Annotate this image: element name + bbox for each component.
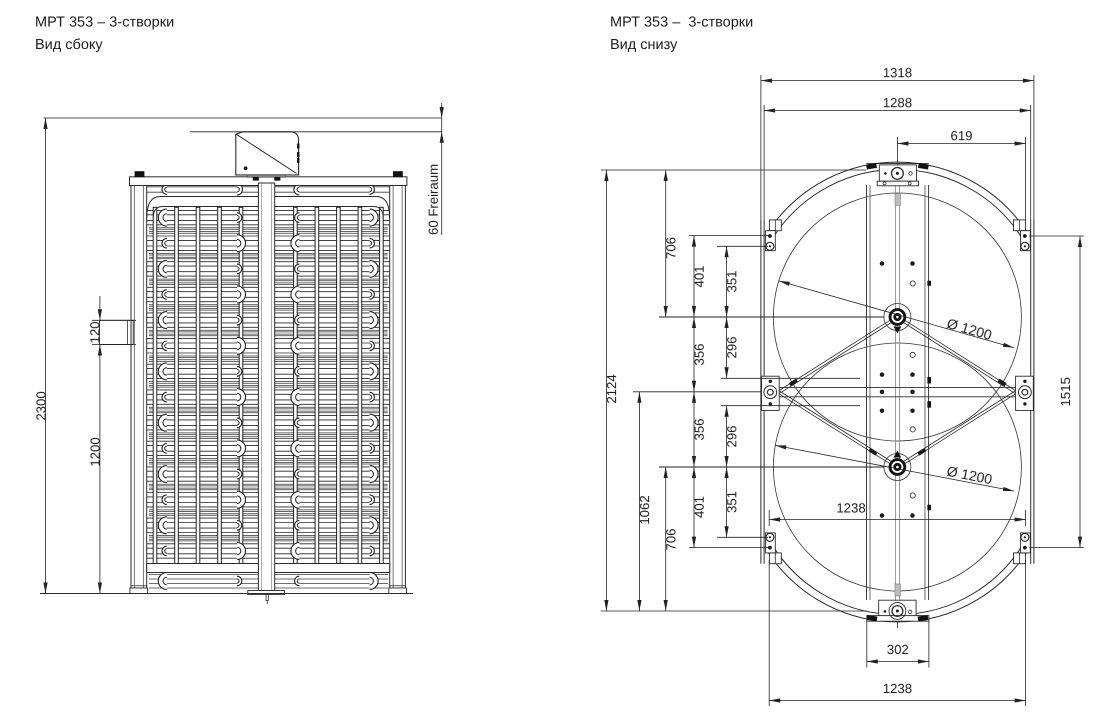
svg-text:2300: 2300 [34,391,49,420]
svg-text:60 Freiraum: 60 Freiraum [426,164,441,235]
svg-text:706: 706 [663,237,678,259]
svg-text:1288: 1288 [883,95,912,110]
svg-text:401: 401 [692,265,707,287]
svg-text:351: 351 [724,270,739,292]
svg-text:401: 401 [692,496,707,518]
svg-text:1238: 1238 [883,681,912,696]
svg-text:1238: 1238 [836,500,865,515]
svg-text:120: 120 [87,321,102,343]
svg-text:619: 619 [950,128,972,143]
svg-text:356: 356 [692,418,707,440]
svg-text:296: 296 [724,336,739,358]
svg-text:351: 351 [724,491,739,513]
svg-text:706: 706 [663,528,678,550]
svg-text:МРТ 353 – 3-створки: МРТ 353 – 3-створки [35,15,174,31]
svg-text:1200: 1200 [88,437,103,466]
svg-text:302: 302 [887,642,909,657]
svg-text:1062: 1062 [637,495,652,524]
svg-text:2124: 2124 [604,374,619,403]
svg-text:Вид сбоку: Вид сбоку [35,37,103,53]
svg-text:Вид снизу: Вид снизу [610,37,678,53]
svg-text:296: 296 [724,425,739,447]
svg-text:356: 356 [692,343,707,365]
svg-text:МРТ 353 – 3-створки: МРТ 353 – 3-створки [610,15,753,31]
svg-text:1515: 1515 [1058,377,1073,406]
svg-text:1318: 1318 [883,65,912,80]
